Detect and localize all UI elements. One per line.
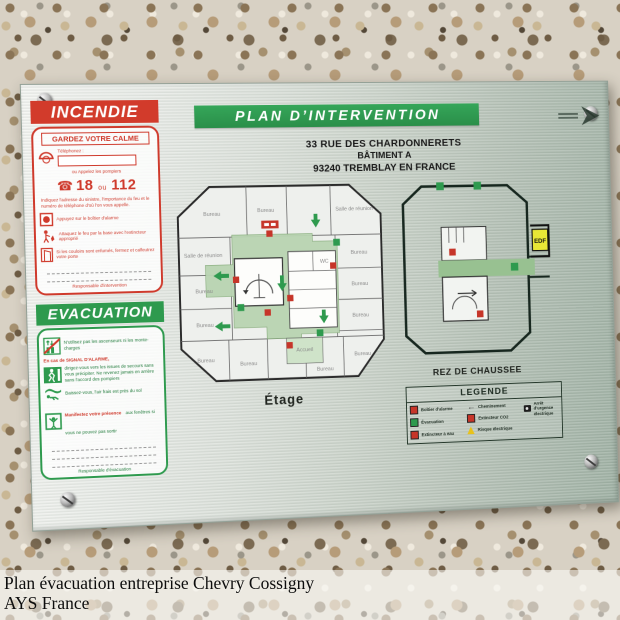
edf-label: EDF (534, 238, 546, 245)
svg-text:WC: WC (320, 259, 329, 265)
screw-icon (584, 454, 598, 469)
legend-label: Extincteur à eau (421, 431, 454, 437)
exit-icon (473, 182, 481, 190)
evacuation-icon (410, 418, 419, 427)
svg-text:Bureau: Bureau (197, 358, 214, 364)
svg-text:Bureau: Bureau (203, 212, 220, 218)
water-extinguisher-icon (410, 431, 419, 440)
plate-maker-logo (556, 104, 601, 127)
intervention-plan-plate: INCENDIE GARDEZ VOTRE CALME Téléphonez :… (20, 81, 619, 532)
call-firemen-label: ou Appelez les pompiers (38, 168, 154, 175)
svg-text:Bureau: Bureau (257, 208, 274, 214)
extinguisher-icon (449, 249, 456, 256)
legend-box: LEGENDE Boîtier d'alarme Évacuation Exti… (406, 381, 564, 445)
electric-risk-icon (468, 426, 475, 434)
legend-label: Cheminement (478, 403, 506, 409)
press-alarm-label: Appuyez sur le boîtier d'alarme (56, 215, 118, 222)
co2-extinguisher-icon (467, 414, 475, 423)
instruction-panels: INCENDIE GARDEZ VOTRE CALME Téléphonez :… (30, 100, 168, 481)
svg-text:Accueil: Accueil (296, 347, 313, 353)
route-arrow-icon: ← (467, 403, 475, 410)
intervention-manager-label: Responsable d'intervention (41, 282, 157, 291)
svg-text:Salle de réunion: Salle de réunion (184, 253, 223, 260)
legend-label: Arrêt d'urgence électrique (534, 400, 560, 416)
show-at-window-icon (45, 413, 62, 431)
floor-plan-etage: Bureau Bureau Salle de réunion Salle de … (167, 177, 393, 411)
screw-icon (60, 492, 75, 508)
rdc-label: REZ DE CHAUSSEE (396, 363, 558, 379)
legend-label: Risque électrique (478, 426, 513, 432)
phone-icon: ☎ (57, 180, 73, 193)
legend-label: Extincteur CO2 (478, 414, 508, 420)
alarm-box-icon (410, 406, 419, 415)
keep-calm-label: GARDEZ VOTRE CALME (41, 132, 150, 146)
etage-label: Étage (173, 388, 393, 411)
svg-text:Bureau: Bureau (317, 366, 334, 372)
fire-warning-text: Indiquez l'adresse du sinistre, l'import… (41, 196, 153, 209)
door-icon (40, 247, 53, 262)
no-elevator-label: N'utilisez pas les ascenseurs ni les mon… (64, 337, 159, 351)
stay-low-label: Baissez-vous, l'air frais est près du so… (65, 388, 142, 396)
floor-plan-rdc: EDF REZ DE CHAUSSEE (391, 177, 558, 380)
alarm-signal-label: En cas de SIGNAL D'ALARME, (43, 354, 159, 364)
legend-label: Évacuation (421, 419, 444, 425)
show-presence-label: Manifestez votre présence (65, 410, 122, 417)
svg-text:Bureau: Bureau (240, 361, 257, 367)
telephone-label: Téléphonez : (57, 148, 136, 155)
caption-line-1: Plan évacuation entreprise Chevry Cossig… (0, 570, 620, 593)
incendie-header: INCENDIE (30, 100, 158, 124)
legend-label: Boîtier d'alarme (421, 406, 453, 412)
incendie-panel: GARDEZ VOTRE CALME Téléphonez : ou Appel… (31, 126, 163, 296)
address-block: 33 RUE DES CHARDONNERETS BÂTIMENT A 9324… (214, 136, 549, 176)
extinguisher-icon (477, 310, 484, 317)
telephone-field (58, 154, 137, 166)
plan-title: PLAN D’INTERVENTION (194, 103, 479, 128)
svg-text:Bureau: Bureau (196, 289, 213, 295)
go-to-exits-label: dirigez-vous vers les issues de secours … (64, 363, 160, 383)
svg-text:Bureau: Bureau (351, 281, 368, 287)
fireman-helmet-icon (38, 150, 55, 165)
caption-line-2: AYS France (0, 593, 620, 613)
crawl-under-smoke-icon (44, 386, 62, 401)
smoky-corridor-label: Si les couloirs sont enfumés, fermez et … (56, 247, 156, 261)
evacuation-panel: N'utilisez pas les ascenseurs ni les mon… (37, 325, 169, 481)
no-elevator-icon (43, 337, 61, 356)
emergency-exit-icon (44, 367, 62, 384)
exit-icon (511, 263, 519, 271)
svg-text:Salle de réunion: Salle de réunion (335, 206, 372, 213)
svg-text:Bureau: Bureau (196, 323, 213, 329)
svg-text:Bureau: Bureau (354, 351, 371, 357)
exit-icon (436, 182, 444, 190)
extinguisher-person-icon (40, 229, 56, 244)
signature-lines (52, 439, 157, 467)
svg-text:Bureau: Bureau (351, 250, 368, 256)
alarm-label (261, 220, 278, 228)
signature-lines (47, 264, 152, 282)
svg-text:Bureau: Bureau (352, 312, 369, 318)
photo-of-evacuation-plan: { "caption": { "line1": "Plan évacuation… (0, 0, 620, 620)
caption-band: Plan évacuation entreprise Chevry Cossig… (0, 570, 620, 620)
alarm-button-icon (39, 212, 53, 226)
corridor (438, 258, 535, 277)
attack-fire-label: Attaquez le feu par la base avec l'extin… (59, 229, 156, 242)
emergency-stop-icon (524, 405, 531, 412)
evacuation-header: EVACUATION (36, 301, 164, 326)
